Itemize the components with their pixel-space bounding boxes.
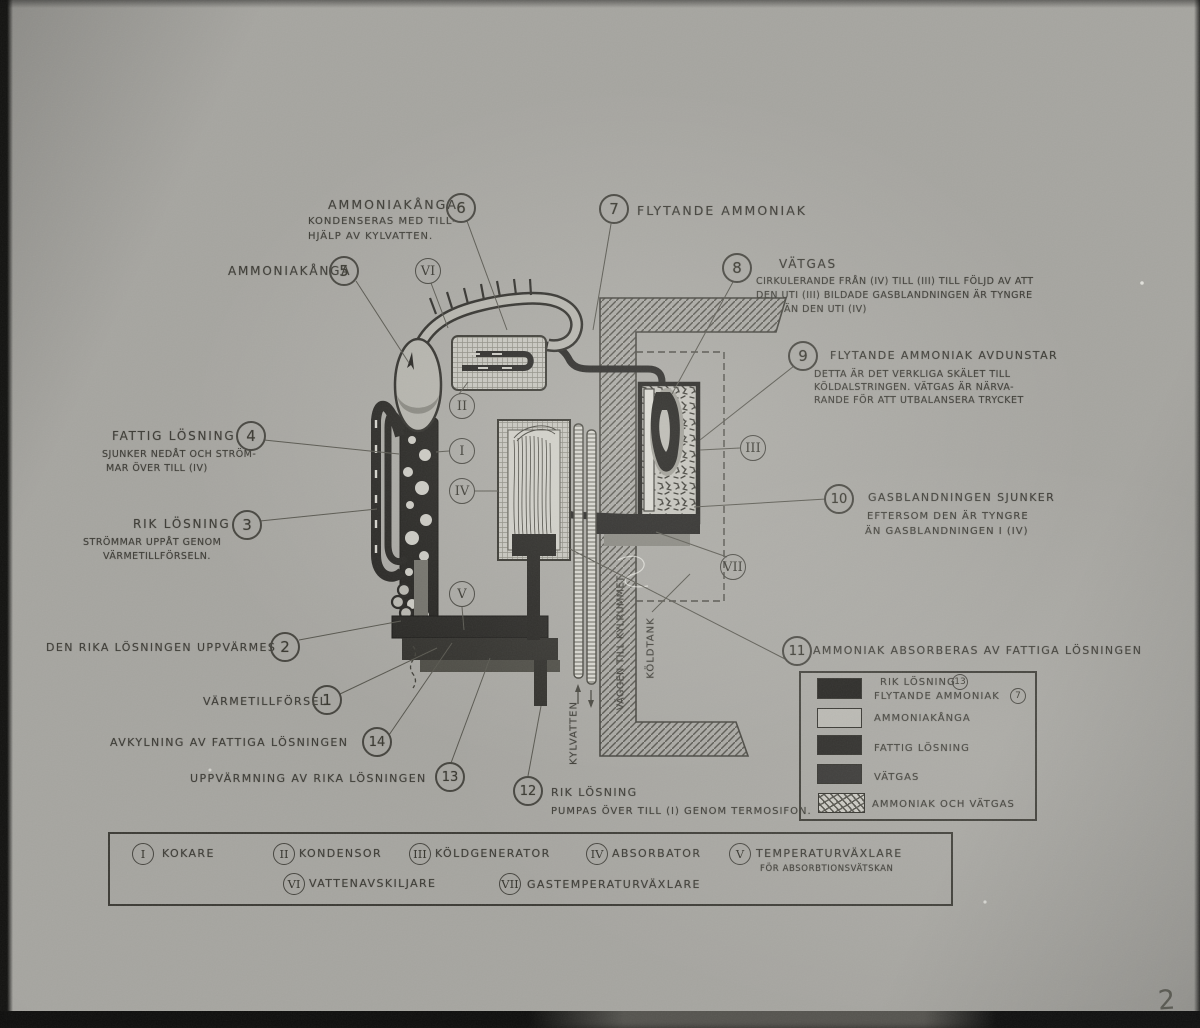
legend-numeral-I: I (132, 843, 154, 865)
legend-fattig-losning: FATTIG LÖSNING (874, 743, 970, 754)
label-3-sub2: VÄRMETILLFÖRSELN. (103, 551, 211, 562)
legend-name-kokare: KOKARE (162, 847, 215, 860)
swatch-rik-losning (817, 678, 862, 699)
legend-ref-13: 13 (952, 674, 968, 690)
label-9-sub2: KÖLDALSTRINGEN. VÄTGAS ÄR NÄRVA- (814, 382, 1014, 393)
mark-VI: VI (415, 258, 441, 284)
callout-circle-12: 12 (513, 776, 543, 806)
label-11-title: AMMONIAK ABSORBERAS AV FATTIGA LÖSNINGEN (813, 644, 1142, 657)
swatch-vatgas (817, 764, 862, 784)
legend-name-absorbator: ABSORBATOR (612, 847, 701, 860)
legend-ammoniakanga: AMMONIAKÅNGA (874, 713, 971, 724)
label-7-title: FLYTANDE AMMONIAK (637, 203, 807, 218)
callout-circle-2: 2 (270, 632, 300, 662)
swatch-ammoniak-och-vatgas (818, 793, 865, 813)
label-9-sub3: RANDE FÖR ATT UTBALANSERA TRYCKET (814, 395, 1024, 406)
label-4-sub2: MAR ÖVER TILL (IV) (106, 463, 208, 474)
callout-circle-5: 5 (329, 256, 359, 286)
legend-numeral-II: II (273, 843, 295, 865)
callout-circle-10: 10 (824, 484, 854, 514)
label-2-title: DEN RIKA LÖSNINGEN UPPVÄRMES (46, 641, 276, 654)
label-1-title: VÄRMETILLFÖRSEL (203, 695, 327, 708)
legend-ammoniak-och-vatgas: AMMONIAK OCH VÄTGAS (872, 799, 1015, 810)
legend-name-temperaturvaxlare-sub: FÖR ABSORBTIONSVÄTSKAN (760, 864, 893, 874)
callout-circle-11: 11 (782, 636, 812, 666)
legend-name-vattenavskiljare: VATTENAVSKILJARE (309, 877, 436, 890)
label-12-title: RIK LÖSNING (551, 786, 638, 799)
legend-flytande-ammoniak: FLYTANDE AMMONIAK (874, 691, 1000, 702)
legend-name-koldgenerator: KÖLDGENERATOR (435, 847, 551, 860)
label-8-sub1: CIRKULERANDE FRÅN (IV) TILL (III) TILL F… (756, 276, 1034, 287)
label-8-sub3: ÄN DEN UTI (IV) (784, 304, 867, 315)
mark-I: I (449, 438, 475, 464)
label-9-sub1: DETTA ÄR DET VERKLIGA SKÄLET TILL (814, 369, 1011, 380)
callout-circle-8: 8 (722, 253, 752, 283)
mark-III: III (740, 435, 766, 461)
callout-circle-3: 3 (232, 510, 262, 540)
label-9-title: FLYTANDE AMMONIAK AVDUNSTAR (830, 349, 1058, 362)
label-6-sub1: KONDENSERAS MED TILL- (308, 216, 457, 227)
label-6-title: AMMONIAKÅNGA (328, 197, 458, 212)
callout-circle-6: 6 (446, 193, 476, 223)
label-4-sub1: SJUNKER NEDÅT OCH STRÖM- (102, 449, 256, 460)
swatch-fattig-losning (817, 735, 862, 755)
legend-name-temperaturvaxlare: TEMPERATURVÄXLARE (756, 847, 903, 860)
swatch-ammoniakanga (817, 708, 862, 728)
legend-name-kondensor: KONDENSOR (299, 847, 382, 860)
legend-rik-losning: RIK LÖSNING (880, 677, 956, 688)
mark-II: II (449, 393, 475, 419)
legend-numeral-VII: VII (499, 873, 521, 895)
label-8-title: VÄTGAS (779, 257, 837, 271)
mark-VII: VII (720, 554, 746, 580)
cooling-water-tube-2 (587, 430, 596, 684)
photo-of-absorption-refrigerator-diagram: 5 6 7 8 9 4 3 2 1 14 13 12 10 11 VI II I… (0, 0, 1200, 1028)
legend-numeral-III: III (409, 843, 431, 865)
mark-IV: IV (449, 478, 475, 504)
legend-numeral-V: V (729, 843, 751, 865)
callout-circle-14: 14 (362, 727, 392, 757)
label-10-sub1: EFTERSOM DEN ÄR TYNGRE (867, 511, 1029, 522)
cooling-water-tube-1 (574, 424, 583, 678)
label-8-sub2: DEN UTI (III) BILDADE GASBLANDNINGEN ÄR … (756, 290, 1033, 301)
label-3-sub1: STRÖMMAR UPPÅT GENOM (83, 537, 221, 548)
label-koldtank: KÖLDTANK (646, 617, 657, 678)
label-14-title: AVKYLNING AV FATTIGA LÖSNINGEN (110, 736, 348, 749)
label-kylvatten: KYLVATTEN (569, 701, 580, 765)
callout-circle-13: 13 (435, 762, 465, 792)
label-6-sub2: HJÄLP AV KYLVATTEN. (308, 231, 433, 242)
label-12-sub1: PUMPAS ÖVER TILL (I) GENOM TERMOSIFON. (551, 806, 812, 817)
label-4-title: FATTIG LÖSNING (112, 429, 236, 443)
label-13-title: UPPVÄRMNING AV RIKA LÖSNINGEN (190, 772, 427, 785)
callout-circle-9: 9 (788, 341, 818, 371)
mark-V: V (449, 581, 475, 607)
legend-numeral-IV: IV (586, 843, 608, 865)
label-3-title: RIK LÖSNING (133, 517, 230, 531)
legend-numeral-VI: VI (283, 873, 305, 895)
legend-vatgas: VÄTGAS (874, 772, 919, 783)
label-vaggen-till-kylrummet: VÄGGEN TILL KYLRUMMET (616, 576, 627, 711)
legend-ref-7: 7 (1010, 688, 1026, 704)
label-10-sub2: ÄN GASBLANDNINGEN I (IV) (865, 526, 1028, 537)
callout-circle-1: 1 (312, 685, 342, 715)
callout-circle-7: 7 (599, 194, 629, 224)
callout-circle-4: 4 (236, 421, 266, 451)
legend-name-gastemperaturvaxlare: GASTEMPERATURVÄXLARE (527, 878, 701, 891)
label-10-title: GASBLANDNINGEN SJUNKER (868, 491, 1055, 504)
corner-number: 2 (1157, 984, 1178, 1016)
